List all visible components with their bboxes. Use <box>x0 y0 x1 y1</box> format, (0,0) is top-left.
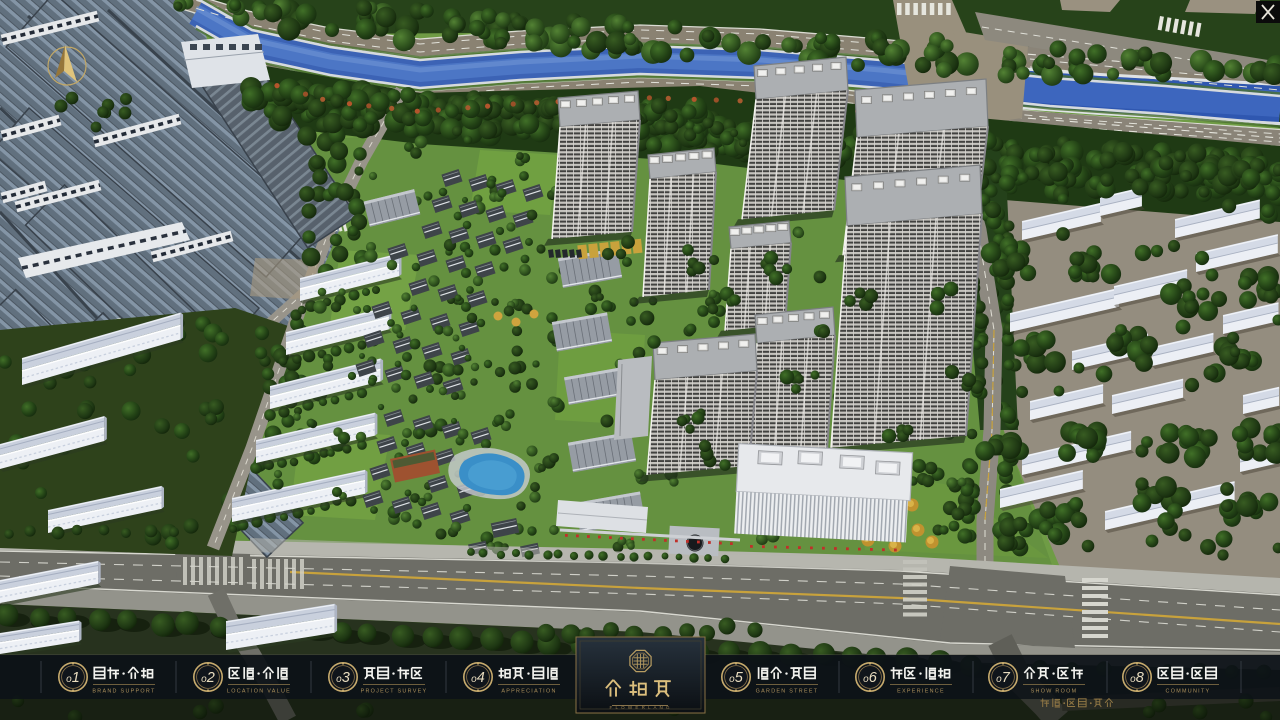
svg-text:COMMUNITY: COMMUNITY <box>1166 689 1211 695</box>
svg-text:GARDEN STREET: GARDEN STREET <box>756 689 819 695</box>
svg-text:SHOW ROOM: SHOW ROOM <box>1031 689 1078 695</box>
svg-text:F L O W E R L A N G: F L O W E R L A N G <box>610 705 671 710</box>
svg-text:BRAND SUPPORT: BRAND SUPPORT <box>92 689 155 695</box>
svg-text:EXPERIENCE: EXPERIENCE <box>897 689 945 695</box>
svg-text:LOCATION VALUE: LOCATION VALUE <box>227 689 291 695</box>
svg-text:PROJECT SURVEY: PROJECT SURVEY <box>361 689 428 695</box>
svg-text:APPRECIATION: APPRECIATION <box>501 689 556 695</box>
